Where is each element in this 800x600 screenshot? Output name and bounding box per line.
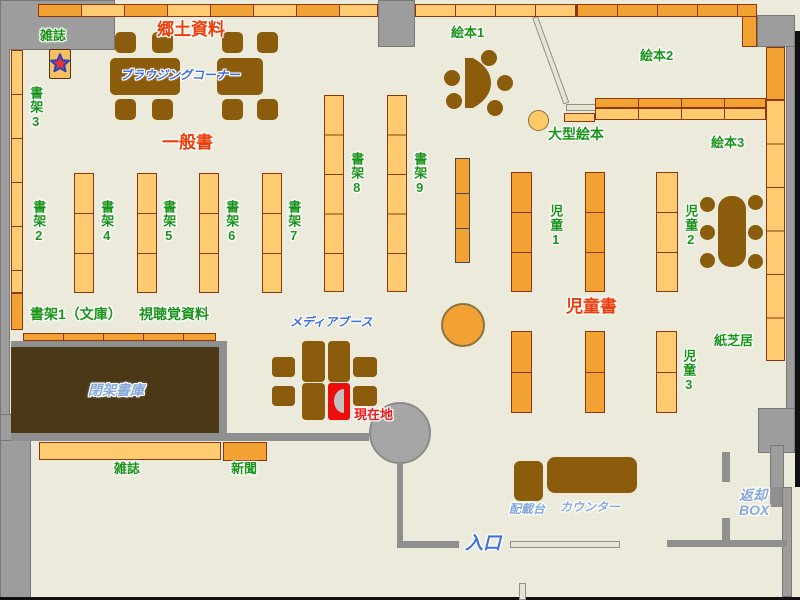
- label-shelf8: 書架8: [349, 152, 363, 196]
- round-table-center: [441, 303, 485, 347]
- entrance-wall-right: [510, 541, 620, 548]
- label-shelf7: 書架7: [286, 200, 300, 244]
- star-icon: [49, 52, 71, 74]
- media-booth-desk: [302, 341, 325, 382]
- loading-stand: [514, 461, 543, 501]
- wall-entrance-horizontal: [11, 433, 369, 441]
- label-magazine-bottom: 雑誌: [114, 462, 140, 476]
- browsing-chair: [115, 32, 136, 53]
- wall-left-column-lower: [0, 440, 31, 598]
- shelf-5: [137, 173, 157, 293]
- shelf-8: [324, 95, 344, 292]
- shelf-newspaper-row: [223, 442, 267, 461]
- media-booth-desk: [328, 341, 350, 382]
- label-return-box-line1: 返却: [739, 487, 767, 503]
- shelf-children3: [656, 331, 677, 413]
- stool: [446, 93, 462, 109]
- wall-returnbox-tab: [770, 487, 782, 507]
- shelf-center-black-border: [455, 158, 470, 263]
- label-children3: 児童3: [681, 349, 695, 393]
- label-shelf5: 書架5: [161, 200, 175, 244]
- wall-top-pillar: [378, 0, 415, 47]
- label-kamishibai: 紙芝居: [714, 334, 753, 348]
- browsing-chair: [115, 99, 136, 120]
- shelf-left-strip: [11, 50, 23, 293]
- wall-right-black-edge: [795, 31, 800, 487]
- media-booth-seat: [353, 357, 377, 377]
- label-entrance: 入口: [465, 534, 501, 554]
- shelf-top-strip-left: [38, 4, 378, 17]
- wall-right-column: [786, 46, 795, 410]
- label-shelf2: 書架2: [31, 200, 45, 244]
- shelf-9: [387, 95, 407, 292]
- shelf-children1-upper-b: [585, 172, 605, 292]
- wall-returnbox-bottom: [667, 540, 787, 547]
- label-return-box-line2: BOX: [739, 502, 769, 518]
- shelf-picturebook2-end-piece: [564, 113, 595, 122]
- label-shelf1-bunko: 書架1（文庫）: [30, 307, 122, 322]
- wall-returnbox-left-lower: [722, 518, 730, 542]
- wall-diagonal-partition: [532, 16, 569, 105]
- shelf-6: [199, 173, 219, 293]
- stool: [487, 100, 503, 116]
- stool: [700, 253, 715, 268]
- shelf-audiovisual-row: [23, 333, 216, 341]
- label-picturebooks1: 絵本1: [451, 26, 484, 40]
- browsing-chair: [222, 32, 243, 53]
- shelf-children1-upper: [511, 172, 532, 292]
- browsing-chair: [257, 99, 278, 120]
- wall-returnbox-left-upper: [722, 452, 730, 482]
- shelf-children1-lower: [511, 331, 532, 413]
- stool: [444, 70, 460, 86]
- label-large-picturebooks: 大型絵本: [548, 127, 604, 142]
- wall-partition-horizontal: [566, 104, 597, 111]
- media-booth-desk: [302, 383, 325, 420]
- shelf-left-strip-dark: [11, 293, 23, 330]
- label-current-location: 現在地: [354, 408, 393, 422]
- large-picturebook-stand: [528, 110, 549, 131]
- media-booth-seat: [272, 357, 295, 377]
- shelf-right-column: [766, 100, 785, 361]
- shelf-top-strip-right: [577, 4, 757, 17]
- label-picturebooks3: 絵本3: [711, 136, 744, 150]
- shelf-picturebook2-row-lower: [595, 108, 766, 120]
- children-table: [718, 196, 746, 267]
- stool: [748, 195, 763, 210]
- counter-desk: [547, 457, 637, 493]
- label-counter: カウンター: [560, 501, 620, 514]
- shelf-children2-upper: [656, 172, 678, 292]
- label-picturebooks2: 絵本2: [640, 49, 673, 63]
- wall-left-column: [0, 49, 10, 415]
- browsing-chair: [152, 99, 173, 120]
- label-magazine-top: 雑誌: [40, 29, 66, 43]
- label-shelf3: 書架3: [28, 86, 42, 130]
- label-browsing-corner: ブラウジングコーナー: [120, 69, 240, 82]
- media-booth-seat: [272, 386, 295, 406]
- label-closed-stacks: 閉架書庫: [88, 383, 144, 398]
- label-loading-stand: 配載台: [509, 503, 545, 516]
- shelf-magazine-row: [39, 442, 221, 460]
- label-newspaper: 新聞: [231, 462, 257, 476]
- label-children-books: 児童書: [566, 298, 617, 317]
- label-shelf9: 書架9: [412, 152, 426, 196]
- stool: [700, 225, 715, 240]
- stool: [748, 254, 763, 269]
- shelf-top-strip-mid: [415, 4, 577, 17]
- shelf-top-right-hang: [742, 16, 757, 47]
- wall-closed-stacks-right: [219, 347, 227, 434]
- pillar-bottom: [519, 583, 526, 600]
- label-return-box: 返却 BOX: [739, 488, 769, 519]
- label-children1: 児童1: [548, 204, 562, 248]
- stool: [481, 50, 497, 66]
- label-audiovisual: 視聴覚資料: [139, 307, 209, 322]
- entrance-path-horizontal: [403, 541, 459, 548]
- label-shelf4: 書架4: [99, 200, 113, 244]
- wall-top-right-corner: [757, 15, 795, 47]
- browsing-chair: [222, 99, 243, 120]
- stool: [748, 225, 763, 240]
- shelf-4: [74, 173, 94, 293]
- label-local-materials: 郷土資料: [157, 21, 225, 40]
- stool: [700, 197, 715, 212]
- shelf-picturebook2-row-upper: [595, 98, 766, 108]
- label-children2: 児童2: [683, 204, 697, 248]
- label-media-booth: メディアブース: [290, 316, 373, 329]
- shelf-right-column-top: [766, 47, 785, 100]
- label-general-books: 一般書: [162, 134, 213, 153]
- entrance-path-vertical: [397, 463, 403, 548]
- label-shelf6: 書架6: [224, 200, 238, 244]
- shelf-children1-lower-b: [585, 331, 605, 413]
- browsing-chair: [257, 32, 278, 53]
- stool: [497, 75, 513, 91]
- wall-right-mid: [770, 445, 784, 488]
- media-booth-seat: [353, 386, 377, 406]
- shelf-7: [262, 173, 282, 293]
- library-floor-map: 雑誌 書架3 郷土資料 ブラウジングコーナー 一般書 書架2 書架4 書架5 書…: [0, 0, 800, 600]
